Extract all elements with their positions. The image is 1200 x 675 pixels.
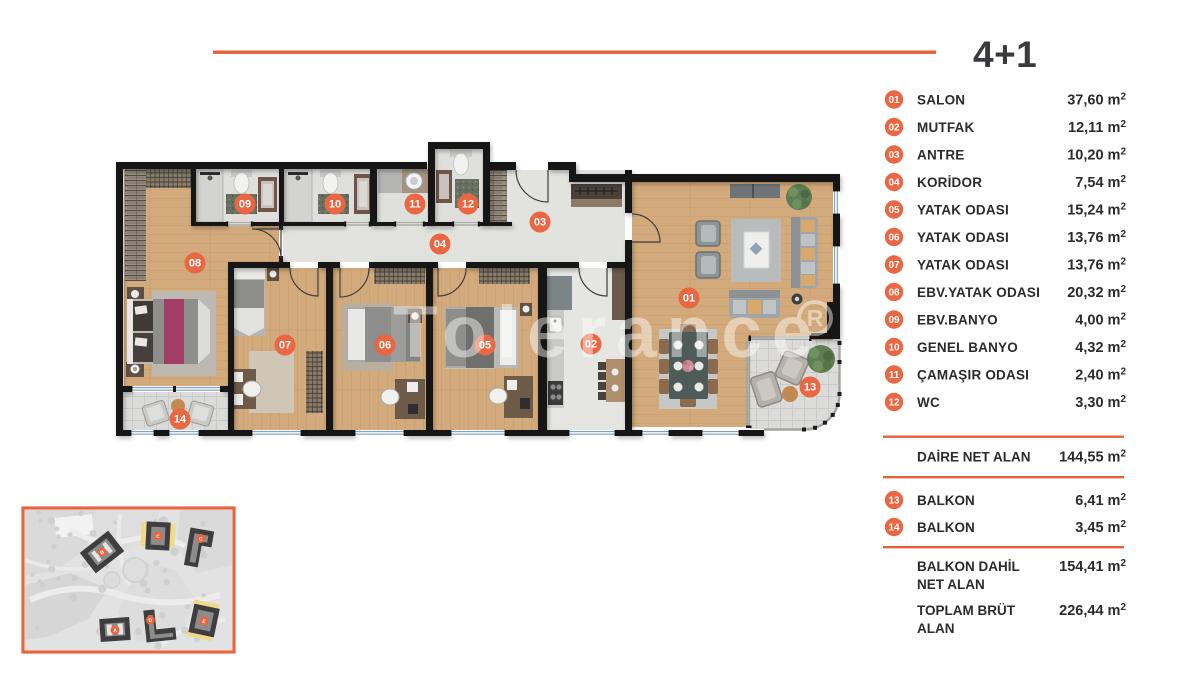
svg-text:3,45 m2: 3,45 m2: [1075, 519, 1126, 536]
svg-text:ANTRE: ANTRE: [917, 147, 965, 162]
svg-text:4+1: 4+1: [973, 34, 1037, 75]
svg-text:20,32 m2: 20,32 m2: [1067, 284, 1126, 301]
svg-text:TOPLAM BRÜT: TOPLAM BRÜT: [917, 603, 1016, 618]
svg-text:12,11 m2: 12,11 m2: [1068, 119, 1126, 136]
svg-text:6,41 m2: 6,41 m2: [1075, 492, 1126, 509]
svg-text:09: 09: [888, 315, 900, 326]
svg-text:2,40 m2: 2,40 m2: [1075, 366, 1126, 383]
svg-text:BALKON: BALKON: [917, 520, 975, 535]
svg-text:144,55 m2: 144,55 m2: [1059, 449, 1126, 466]
svg-text:13,76 m2: 13,76 m2: [1067, 256, 1126, 273]
svg-text:12: 12: [888, 398, 900, 409]
svg-text:MUTFAK: MUTFAK: [917, 120, 974, 135]
svg-text:BALKON DAHİL: BALKON DAHİL: [917, 559, 1020, 574]
svg-text:14: 14: [888, 523, 900, 534]
svg-text:08: 08: [888, 288, 900, 299]
svg-text:07: 07: [279, 340, 291, 352]
svg-text:03: 03: [888, 150, 900, 161]
svg-text:ALAN: ALAN: [917, 621, 955, 636]
svg-text:DAİRE NET ALAN: DAİRE NET ALAN: [917, 450, 1031, 465]
svg-text:EBV.YATAK ODASI: EBV.YATAK ODASI: [917, 285, 1040, 300]
svg-text:12: 12: [462, 199, 474, 211]
svg-text:Tolerance: Tolerance: [393, 292, 822, 373]
svg-text:EBV.BANYO: EBV.BANYO: [917, 312, 998, 327]
svg-text:7,54 m2: 7,54 m2: [1075, 174, 1126, 191]
svg-text:ÇAMAŞIR ODASI: ÇAMAŞIR ODASI: [917, 367, 1029, 382]
svg-text:05: 05: [888, 205, 900, 216]
svg-text:03: 03: [534, 217, 546, 229]
svg-text:WC: WC: [917, 395, 940, 410]
svg-text:13: 13: [888, 496, 900, 507]
svg-text:YATAK ODASI: YATAK ODASI: [917, 202, 1009, 217]
svg-text:10: 10: [888, 343, 900, 354]
svg-text:4,00 m2: 4,00 m2: [1075, 311, 1126, 328]
svg-text:06: 06: [888, 233, 900, 244]
svg-text:226,44 m2: 226,44 m2: [1059, 602, 1126, 619]
svg-text:04: 04: [888, 178, 900, 189]
svg-text:C: C: [156, 534, 160, 540]
svg-text:GENEL BANYO: GENEL BANYO: [917, 340, 1018, 355]
svg-text:08: 08: [189, 258, 201, 270]
svg-text:11: 11: [409, 199, 421, 211]
svg-text:06: 06: [379, 340, 391, 352]
svg-text:YATAK ODASI: YATAK ODASI: [917, 230, 1009, 245]
svg-text:01: 01: [888, 95, 900, 106]
svg-text:02: 02: [888, 123, 900, 134]
svg-text:3,30 m2: 3,30 m2: [1075, 394, 1126, 411]
svg-text:04: 04: [434, 239, 447, 251]
svg-text:14: 14: [174, 414, 187, 426]
svg-text:13,76 m2: 13,76 m2: [1067, 229, 1126, 246]
svg-text:13: 13: [804, 382, 816, 394]
svg-text:NET ALAN: NET ALAN: [917, 577, 985, 592]
svg-text:BALKON: BALKON: [917, 493, 975, 508]
svg-text:YATAK ODASI: YATAK ODASI: [917, 257, 1009, 272]
svg-text:15,24 m2: 15,24 m2: [1067, 201, 1126, 218]
svg-text:10: 10: [329, 199, 341, 211]
svg-text:4,32 m2: 4,32 m2: [1075, 339, 1126, 356]
svg-text:KORİDOR: KORİDOR: [917, 175, 982, 190]
svg-text:11: 11: [889, 370, 900, 381]
svg-text:09: 09: [239, 199, 251, 211]
svg-text:37,60 m2: 37,60 m2: [1067, 91, 1126, 108]
svg-text:10,20 m2: 10,20 m2: [1067, 146, 1126, 163]
svg-text:R: R: [807, 305, 824, 331]
svg-text:154,41 m2: 154,41 m2: [1059, 558, 1126, 575]
svg-text:SALON: SALON: [917, 92, 965, 107]
svg-text:07: 07: [888, 260, 900, 271]
